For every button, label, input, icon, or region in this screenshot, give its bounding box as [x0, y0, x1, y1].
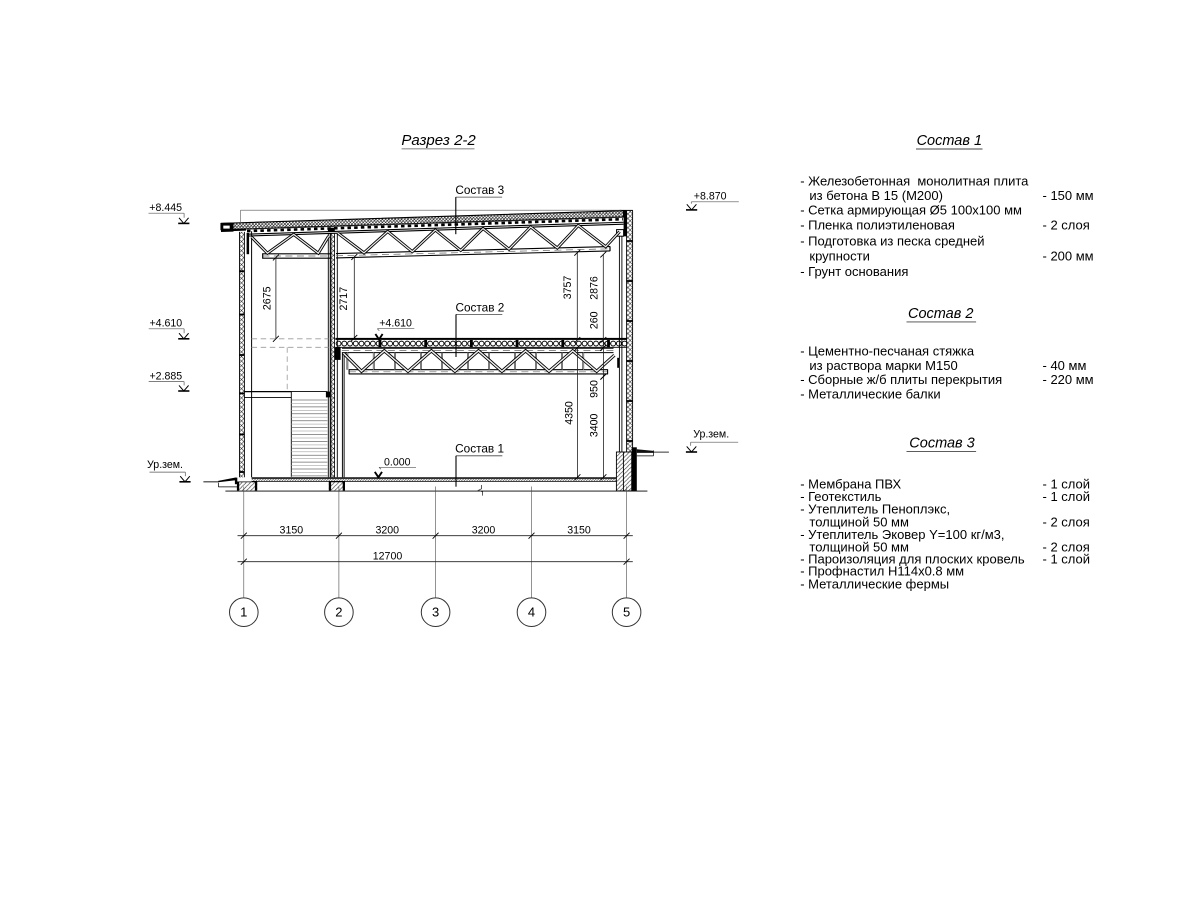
svg-text:- 2 слоя: - 2 слоя	[1043, 218, 1090, 233]
svg-text:3150: 3150	[567, 525, 591, 537]
svg-text:- Подготовка из песка средней: - Подготовка из песка средней	[800, 233, 984, 248]
svg-text:- Металлические фермы: - Металлические фермы	[800, 576, 949, 591]
svg-text:из раствора марки М150: из раствора марки М150	[809, 358, 957, 373]
svg-text:3200: 3200	[375, 525, 399, 537]
svg-text:- 200 мм: - 200 мм	[1043, 249, 1094, 264]
svg-text:- Железобетонная монолитная п: - Железобетонная монолитная плита	[800, 174, 1029, 189]
svg-text:Состав 2: Состав 2	[455, 300, 504, 314]
svg-text:- 40 мм: - 40 мм	[1043, 358, 1087, 373]
svg-text:+8.870: +8.870	[694, 191, 727, 203]
svg-text:Разрез 2-2: Разрез 2-2	[401, 132, 476, 149]
svg-text:2675: 2675	[262, 286, 274, 310]
svg-text:260: 260	[588, 311, 600, 329]
svg-text:1: 1	[240, 605, 247, 620]
svg-text:2876: 2876	[588, 276, 600, 300]
svg-text:- Сетка армирующая Ø5 100х100: - Сетка армирующая Ø5 100х100 мм	[800, 203, 1022, 218]
svg-text:3757: 3757	[562, 276, 574, 300]
svg-text:Состав 3: Состав 3	[455, 183, 504, 197]
svg-text:4: 4	[528, 605, 535, 620]
svg-text:950: 950	[588, 380, 600, 398]
svg-text:2: 2	[335, 605, 342, 620]
svg-text:+4.610: +4.610	[379, 318, 412, 330]
svg-text:- 220 мм: - 220 мм	[1043, 372, 1094, 387]
svg-text:+2.885: +2.885	[149, 370, 182, 382]
svg-text:+4.610: +4.610	[149, 318, 182, 330]
svg-text:2717: 2717	[338, 287, 350, 311]
svg-text:- Грунт основания: - Грунт основания	[800, 264, 908, 279]
svg-text:- 1 слой: - 1 слой	[1043, 551, 1091, 566]
svg-text:Состав 1: Состав 1	[455, 442, 504, 456]
svg-text:Ур.зем.: Ур.зем.	[693, 428, 729, 440]
svg-text:- Металлические балки: - Металлические балки	[800, 387, 940, 402]
svg-text:Состав 2: Состав 2	[908, 306, 973, 322]
svg-text:- 2 слоя: - 2 слоя	[1043, 514, 1090, 529]
svg-text:12700: 12700	[373, 550, 403, 562]
svg-text:0.000: 0.000	[384, 456, 411, 468]
svg-text:крупности: крупности	[809, 249, 869, 264]
svg-text:3200: 3200	[472, 525, 496, 537]
svg-text:- 1 слой: - 1 слой	[1043, 489, 1091, 504]
svg-text:Состав 1: Состав 1	[917, 133, 982, 149]
svg-text:4350: 4350	[563, 401, 575, 425]
svg-text:- Пленка полиэтиленовая: - Пленка полиэтиленовая	[800, 218, 955, 233]
svg-text:- 150 мм: - 150 мм	[1043, 188, 1094, 203]
svg-text:3400: 3400	[588, 414, 600, 438]
svg-text:Ур.зем.: Ур.зем.	[147, 459, 183, 471]
svg-text:из бетона В 15 (М200): из бетона В 15 (М200)	[809, 188, 943, 203]
svg-text:+8.445: +8.445	[149, 202, 182, 214]
svg-text:- Сборные ж/б плиты перекрытия: - Сборные ж/б плиты перекрытия	[800, 372, 1002, 387]
svg-text:3: 3	[432, 605, 439, 620]
svg-text:5: 5	[623, 605, 630, 620]
svg-text:- Цементно-песчаная стяжка: - Цементно-песчаная стяжка	[800, 343, 975, 358]
svg-text:Состав 3: Состав 3	[909, 436, 974, 452]
svg-text:3150: 3150	[280, 525, 304, 537]
